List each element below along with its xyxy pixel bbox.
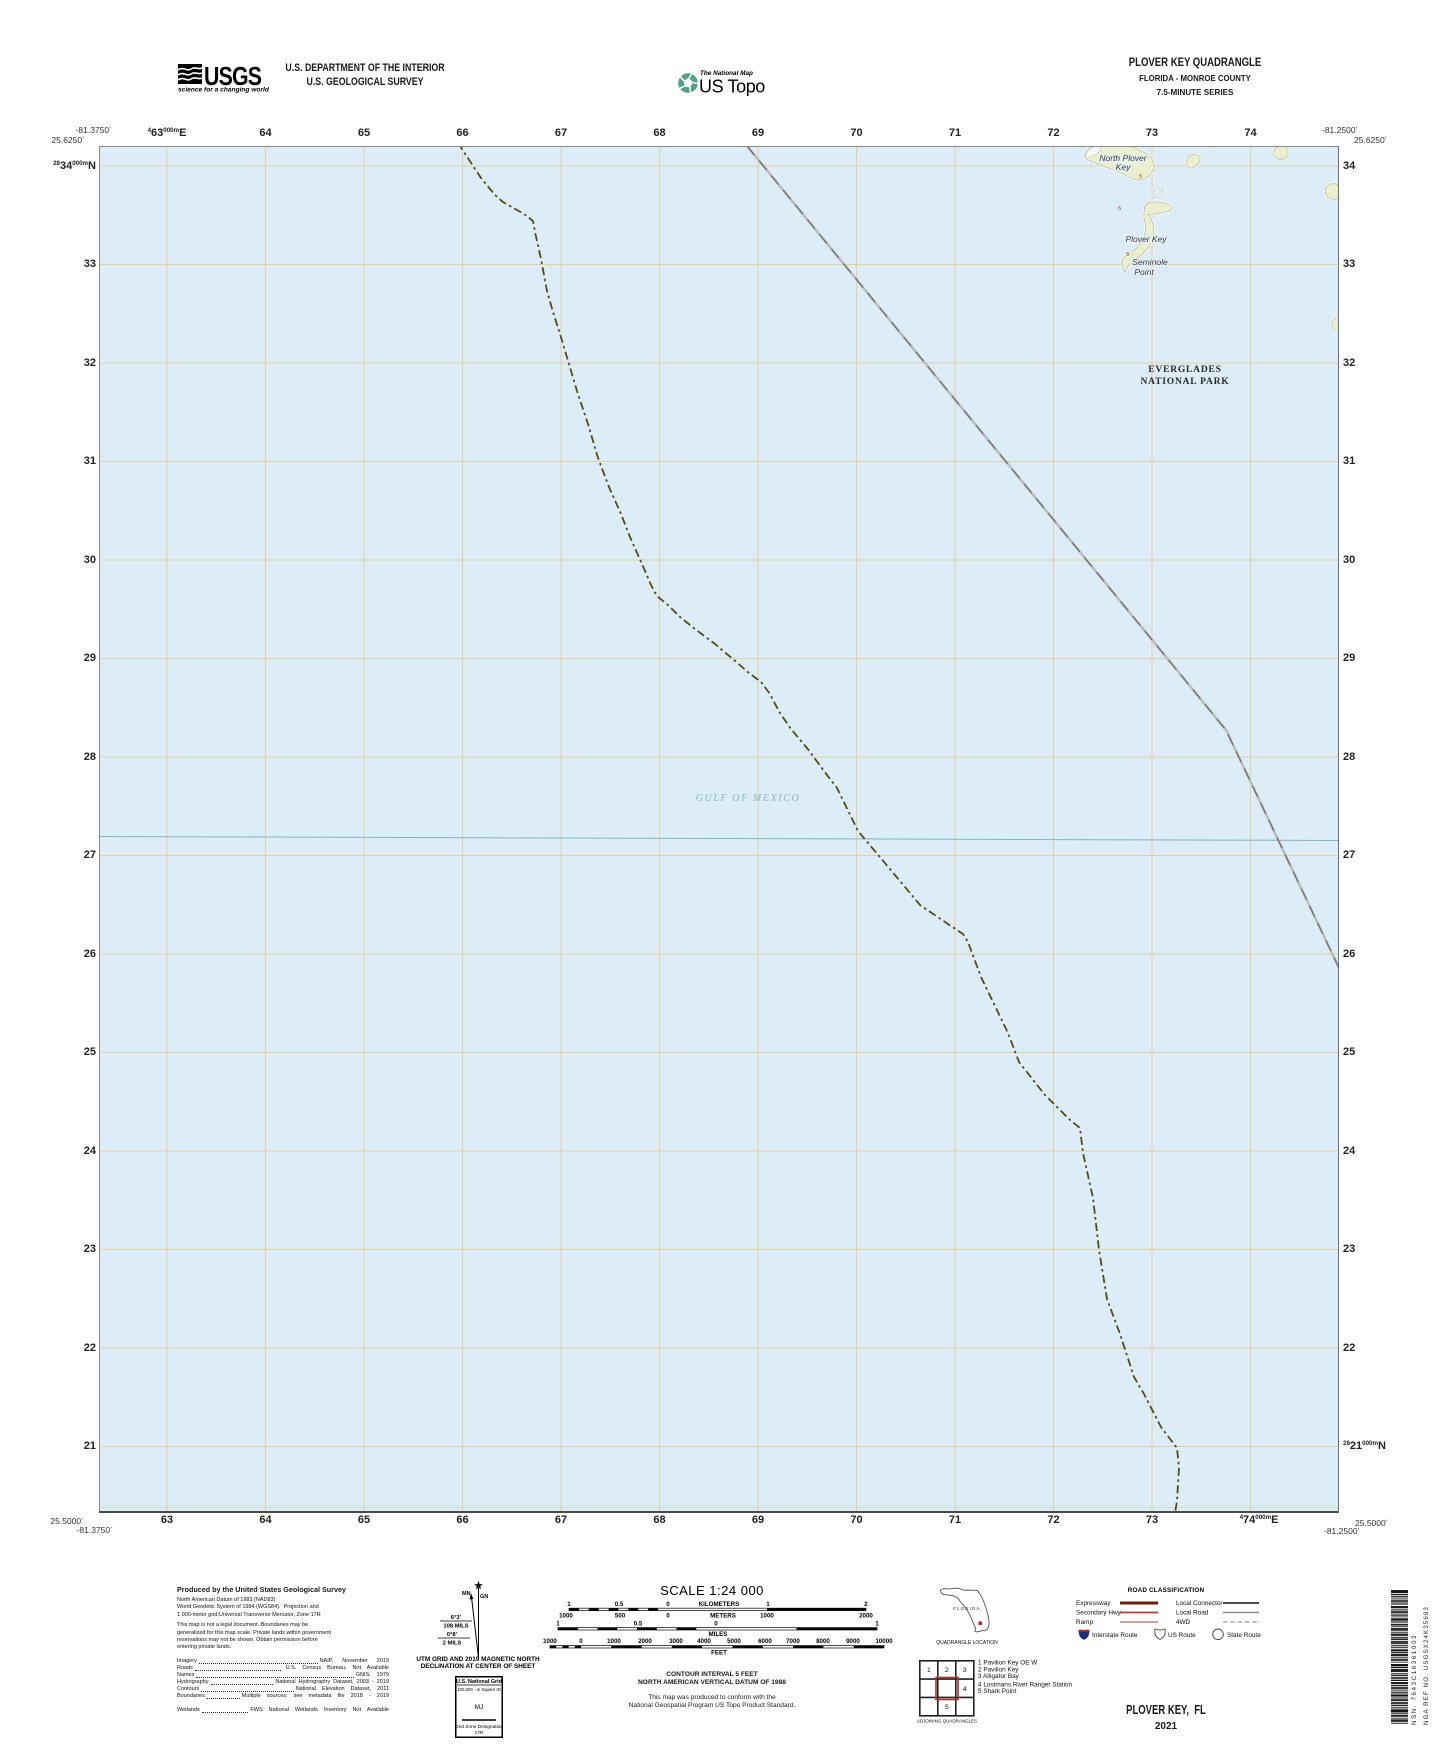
svg-text:MILES: MILES [709,1631,728,1638]
svg-text:QUADRANGLE LOCATION: QUADRANGLE LOCATION [936,1640,998,1646]
svg-text:3 Alligator Bay: 3 Alligator Bay [978,1673,1020,1680]
svg-text:8000: 8000 [816,1638,830,1645]
svg-text:0°8ʼ: 0°8ʼ [447,1632,458,1638]
svg-text:Key: Key [1116,162,1131,172]
svg-text:6°3ʼ: 6°3ʼ [451,1615,462,1621]
svg-text:MN: MN [462,1591,471,1597]
svg-text:6000: 6000 [758,1638,772,1645]
svg-text:1: 1 [766,1601,770,1608]
svg-text:100,000 - m Square ID: 100,000 - m Square ID [457,1687,500,1692]
svg-text:0: 0 [714,1621,718,1628]
svg-text:4000: 4000 [697,1638,711,1645]
svg-text:2: 2 [945,1667,949,1674]
svg-text:2 MILS: 2 MILS [443,1641,462,1647]
svg-text:5 Shark Point: 5 Shark Point [978,1688,1017,1695]
svg-text:ROAD CLASSIFICATION: ROAD CLASSIFICATION [1128,1587,1205,1594]
svg-text:SCALE 1:24 000: SCALE 1:24 000 [660,1583,764,1598]
svg-text:1000: 1000 [760,1613,774,1620]
svg-text:17R: 17R [475,1730,484,1736]
svg-text:2000: 2000 [638,1638,652,1645]
svg-text:Plover Key: Plover Key [1125,234,1167,244]
svg-text:GULF OF MEXICO: GULF OF MEXICO [696,793,801,804]
svg-text:1 Pavilion Key OE W: 1 Pavilion Key OE W [978,1660,1038,1667]
svg-text:7000: 7000 [786,1638,800,1645]
svg-text:9000: 9000 [846,1638,860,1645]
svg-text:Point: Point [1134,267,1154,277]
svg-text:Local Connector: Local Connector [1176,1600,1223,1607]
svg-text:METERS: METERS [710,1613,736,1620]
svg-text:4WD: 4WD [1176,1619,1191,1626]
svg-text:1: 1 [875,1621,879,1628]
svg-text:1000: 1000 [543,1638,557,1645]
svg-text:0.5: 0.5 [634,1621,643,1628]
svg-text:0.5: 0.5 [615,1601,624,1608]
svg-text:NGA REF NO. USGSX24K35693: NGA REF NO. USGSX24K35693 [1423,1606,1430,1725]
svg-text:UTM GRID AND 2019 MAGNETIC NOR: UTM GRID AND 2019 MAGNETIC NORTH [416,1656,540,1663]
svg-text:3: 3 [963,1667,967,1674]
svg-text:Secondary Hwy: Secondary Hwy [1076,1610,1122,1617]
svg-text:US Topo: US Topo [699,77,765,97]
svg-text:GN: GN [480,1594,488,1600]
svg-text:Interstate Route: Interstate Route [1092,1632,1138,1639]
svg-text:FEET: FEET [711,1650,727,1657]
svg-text:0: 0 [666,1613,670,1620]
svg-text:108 MILS: 108 MILS [443,1624,468,1630]
svg-text:US Route: US Route [1168,1632,1196,1639]
svg-text:1000: 1000 [607,1638,621,1645]
svg-text:DECLINATION AT CENTER OF SHEET: DECLINATION AT CENTER OF SHEET [421,1663,536,1670]
svg-text:Expressway: Expressway [1076,1600,1111,1607]
svg-text:ADJOINING QUADRANGLES: ADJOINING QUADRANGLES [917,1719,977,1724]
svg-text:Seminole: Seminole [1132,257,1168,267]
svg-text:2: 2 [864,1601,868,1608]
svg-text:5: 5 [945,1704,949,1711]
svg-text:Ramp: Ramp [1076,1619,1093,1626]
svg-text:0: 0 [666,1601,670,1608]
svg-text:1: 1 [556,1621,560,1628]
svg-text:U.S. National Grid: U.S. National Grid [456,1679,502,1685]
svg-text:Grid Zone Designation: Grid Zone Designation [455,1724,503,1730]
svg-text:EVERGLADES: EVERGLADES [1148,365,1221,375]
svg-text:1: 1 [567,1601,571,1608]
svg-text:Local Road: Local Road [1176,1610,1209,1617]
svg-text:4: 4 [963,1686,967,1693]
svg-text:3000: 3000 [669,1638,683,1645]
svg-text:2000: 2000 [859,1613,873,1620]
svg-text:NSN. 7643C16361003: NSN. 7643C16361003 [1411,1634,1418,1725]
svg-text:MJ: MJ [475,1704,484,1711]
svg-text:FLORIDA: FLORIDA [953,1606,981,1611]
svg-text:1000: 1000 [559,1613,573,1620]
svg-text:10000: 10000 [875,1638,893,1645]
svg-text:5000: 5000 [727,1638,741,1645]
svg-text:500: 500 [615,1613,626,1620]
svg-text:0: 0 [579,1638,583,1645]
svg-text:State Route: State Route [1227,1632,1261,1639]
svg-text:KILOMETERS: KILOMETERS [699,1601,740,1608]
svg-text:NATIONAL PARK: NATIONAL PARK [1141,377,1230,387]
svg-text:1: 1 [927,1667,931,1674]
